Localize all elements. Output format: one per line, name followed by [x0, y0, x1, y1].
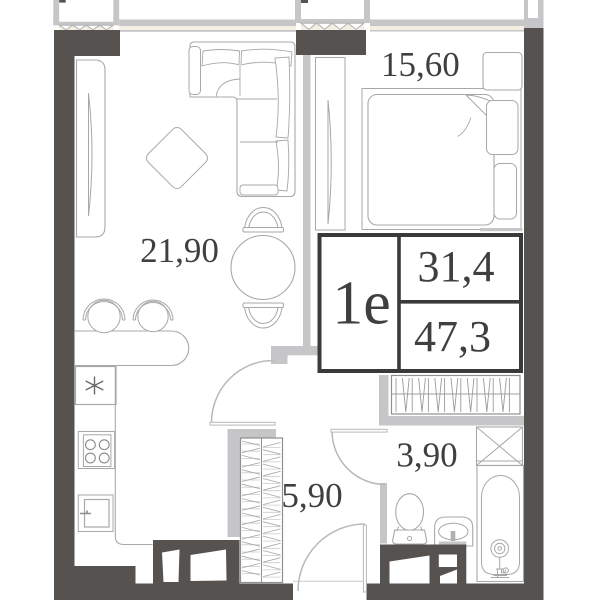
svg-text:15,60: 15,60: [381, 45, 460, 84]
svg-text:1е: 1е: [332, 270, 391, 338]
svg-text:31,4: 31,4: [418, 242, 495, 291]
svg-text:3,90: 3,90: [396, 436, 457, 475]
svg-text:47,3: 47,3: [414, 312, 491, 361]
svg-text:5,90: 5,90: [281, 476, 342, 515]
svg-text:21,90: 21,90: [140, 231, 219, 270]
